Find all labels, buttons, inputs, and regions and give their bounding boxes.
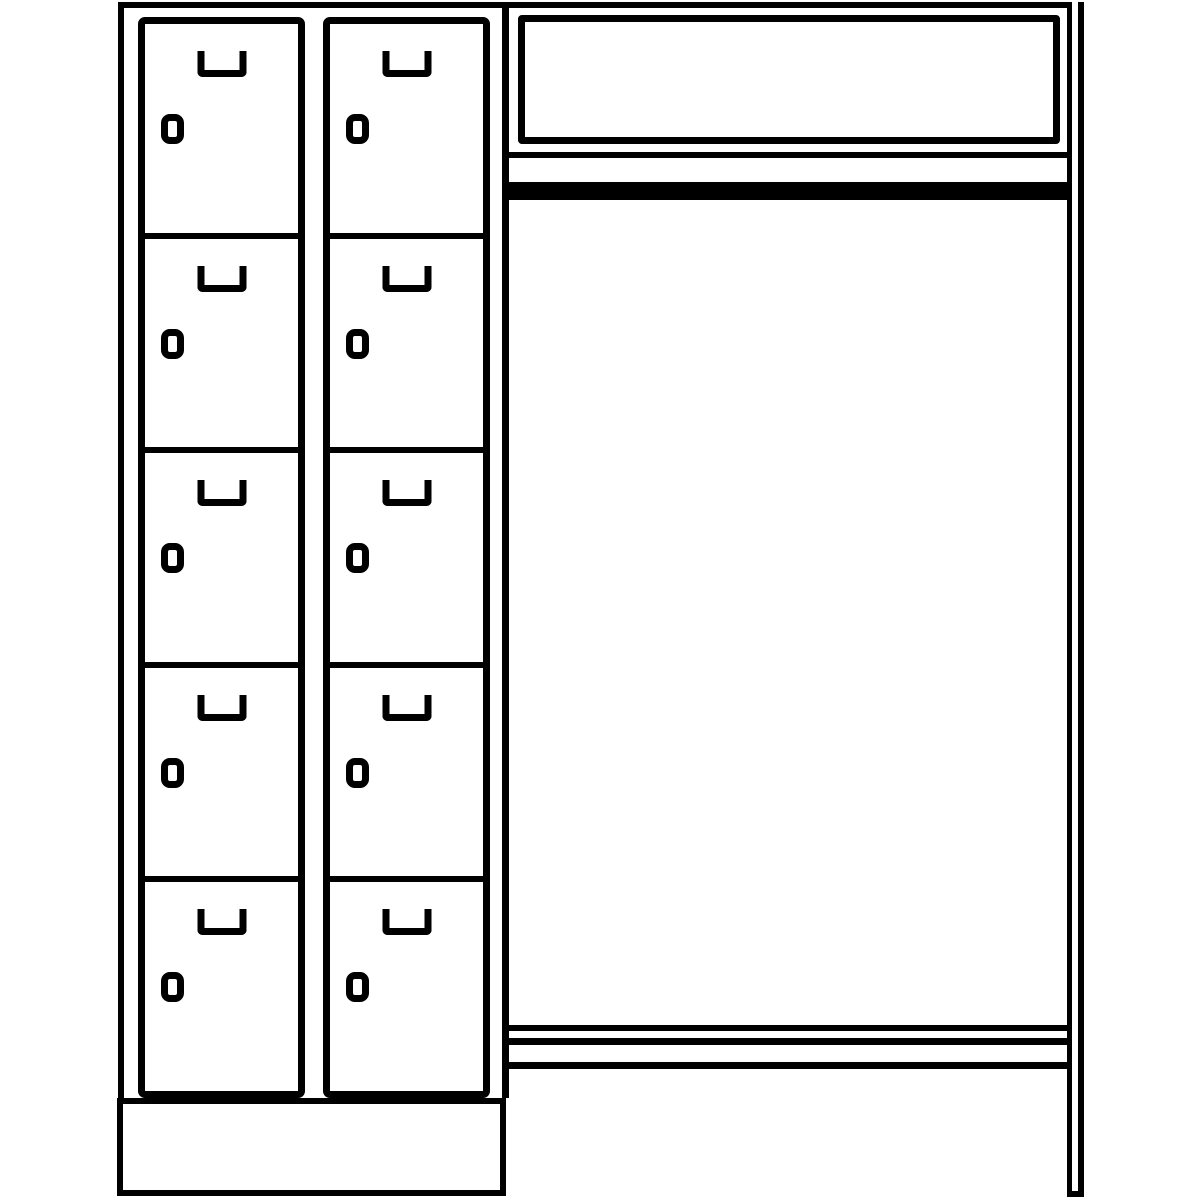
cylinder-lock-icon xyxy=(161,114,184,144)
locker-door-col1-row4 xyxy=(145,662,298,877)
locker-door-col2-row1 xyxy=(330,24,483,233)
door-handle-icon xyxy=(197,266,246,292)
cylinder-lock-icon xyxy=(161,972,184,1002)
cylinder-lock-icon xyxy=(346,758,369,788)
locker-door-col2-row5 xyxy=(330,876,483,1091)
locker-left-side-panel xyxy=(118,2,124,1100)
technical-drawing-canvas xyxy=(0,0,1200,1200)
door-handle-icon xyxy=(197,909,246,935)
locker-door-col1-row5 xyxy=(145,876,298,1091)
locker-column-2 xyxy=(323,17,490,1098)
bench-rail-bottom xyxy=(509,1062,1067,1069)
locker-column-1 xyxy=(138,17,305,1098)
door-handle-icon xyxy=(382,695,431,721)
locker-door-col1-row3 xyxy=(145,447,298,662)
cylinder-lock-icon xyxy=(346,329,369,359)
cylinder-lock-icon xyxy=(161,543,184,573)
door-handle-icon xyxy=(382,480,431,506)
bench-rail-top xyxy=(509,1025,1067,1031)
coat-rail-bar xyxy=(509,182,1067,200)
cylinder-lock-icon xyxy=(161,329,184,359)
locker-door-col1-row1 xyxy=(145,24,298,233)
cylinder-lock-icon xyxy=(346,972,369,1002)
center-support-post xyxy=(502,2,509,1098)
bench-rail-middle xyxy=(509,1038,1067,1045)
door-handle-icon xyxy=(382,266,431,292)
plinth-base xyxy=(117,1098,506,1196)
door-handle-icon xyxy=(197,695,246,721)
locker-door-col2-row3 xyxy=(330,447,483,662)
cylinder-lock-icon xyxy=(161,758,184,788)
door-handle-icon xyxy=(197,51,246,77)
locker-door-col2-row2 xyxy=(330,233,483,448)
hat-shelf xyxy=(518,15,1060,144)
door-handle-icon xyxy=(382,51,431,77)
cylinder-lock-icon xyxy=(346,543,369,573)
cylinder-lock-icon xyxy=(346,114,369,144)
door-handle-icon xyxy=(382,909,431,935)
door-handle-icon xyxy=(197,480,246,506)
locker-door-col2-row4 xyxy=(330,662,483,877)
locker-door-col1-row2 xyxy=(145,233,298,448)
top-frame-rail xyxy=(118,2,1084,8)
shelf-bottom-rail xyxy=(509,152,1067,158)
right-side-frame xyxy=(1067,2,1084,1197)
